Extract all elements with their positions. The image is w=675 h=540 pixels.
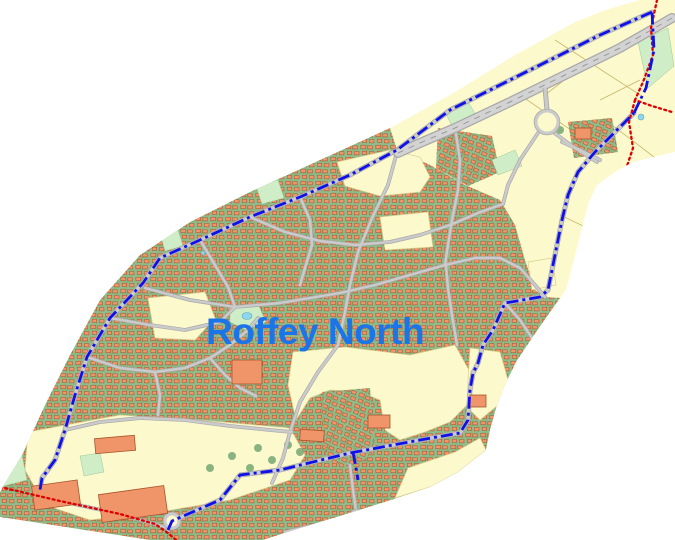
- ward-area: [0, 0, 675, 540]
- ward-map-canvas: [0, 0, 675, 540]
- ward-name-label: Roffey North: [206, 313, 424, 350]
- ward-map-viewport: Roffey North: [0, 0, 675, 540]
